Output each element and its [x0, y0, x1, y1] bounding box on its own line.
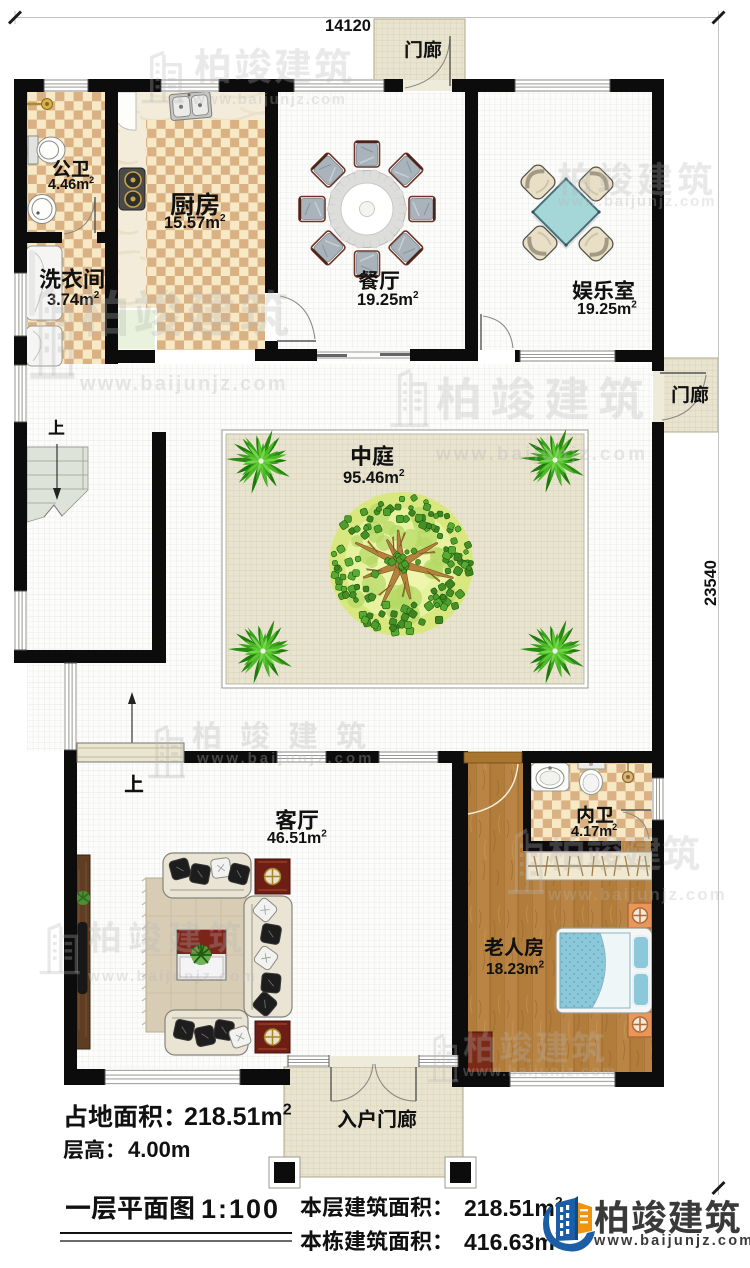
svg-text:4.46m2: 4.46m2 [48, 175, 94, 193]
svg-text:www.baijunjz.com: www.baijunjz.com [557, 193, 716, 210]
svg-text:218.51m2: 218.51m2 [184, 1102, 292, 1132]
svg-text:www.baijunjz.com: www.baijunjz.com [79, 373, 288, 395]
svg-text:www.baijunjz.com: www.baijunjz.com [547, 885, 727, 904]
svg-text:www.baijunjz.com: www.baijunjz.com [87, 968, 257, 985]
svg-text:18.23m2: 18.23m2 [486, 960, 545, 979]
svg-text:46.51m2: 46.51m2 [267, 828, 327, 847]
svg-text:www.baijunjz.com: www.baijunjz.com [462, 1063, 616, 1080]
svg-text:95.46m2: 95.46m2 [343, 468, 405, 487]
svg-text:4.00m: 4.00m [128, 1137, 190, 1162]
svg-text:15.57m2: 15.57m2 [164, 213, 226, 232]
svg-text:www.baijunjz.com: www.baijunjz.com [593, 1233, 750, 1249]
svg-text:www.baijunjz.com: www.baijunjz.com [435, 444, 648, 465]
svg-text:23540: 23540 [702, 560, 720, 606]
svg-text:19.25m2: 19.25m2 [357, 290, 419, 309]
svg-text:1:100: 1:100 [201, 1194, 280, 1224]
svg-text:14120: 14120 [325, 17, 371, 35]
svg-text:19.25m2: 19.25m2 [577, 299, 637, 318]
svg-text:www.baijunjz.com: www.baijunjz.com [196, 750, 374, 767]
svg-text:www.baijunjz.com: www.baijunjz.com [192, 91, 346, 108]
